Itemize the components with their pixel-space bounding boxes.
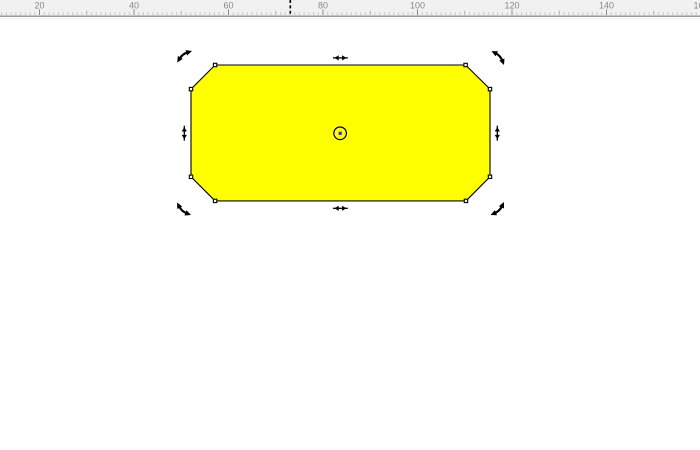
svg-text:60: 60: [223, 1, 233, 11]
svg-text:100: 100: [410, 1, 425, 11]
svg-text:40: 40: [129, 1, 139, 11]
svg-text:140: 140: [599, 1, 614, 11]
svg-text:80: 80: [318, 1, 328, 11]
svg-text:20: 20: [34, 1, 44, 11]
svg-text:120: 120: [504, 1, 519, 11]
svg-text:160: 160: [693, 1, 700, 11]
